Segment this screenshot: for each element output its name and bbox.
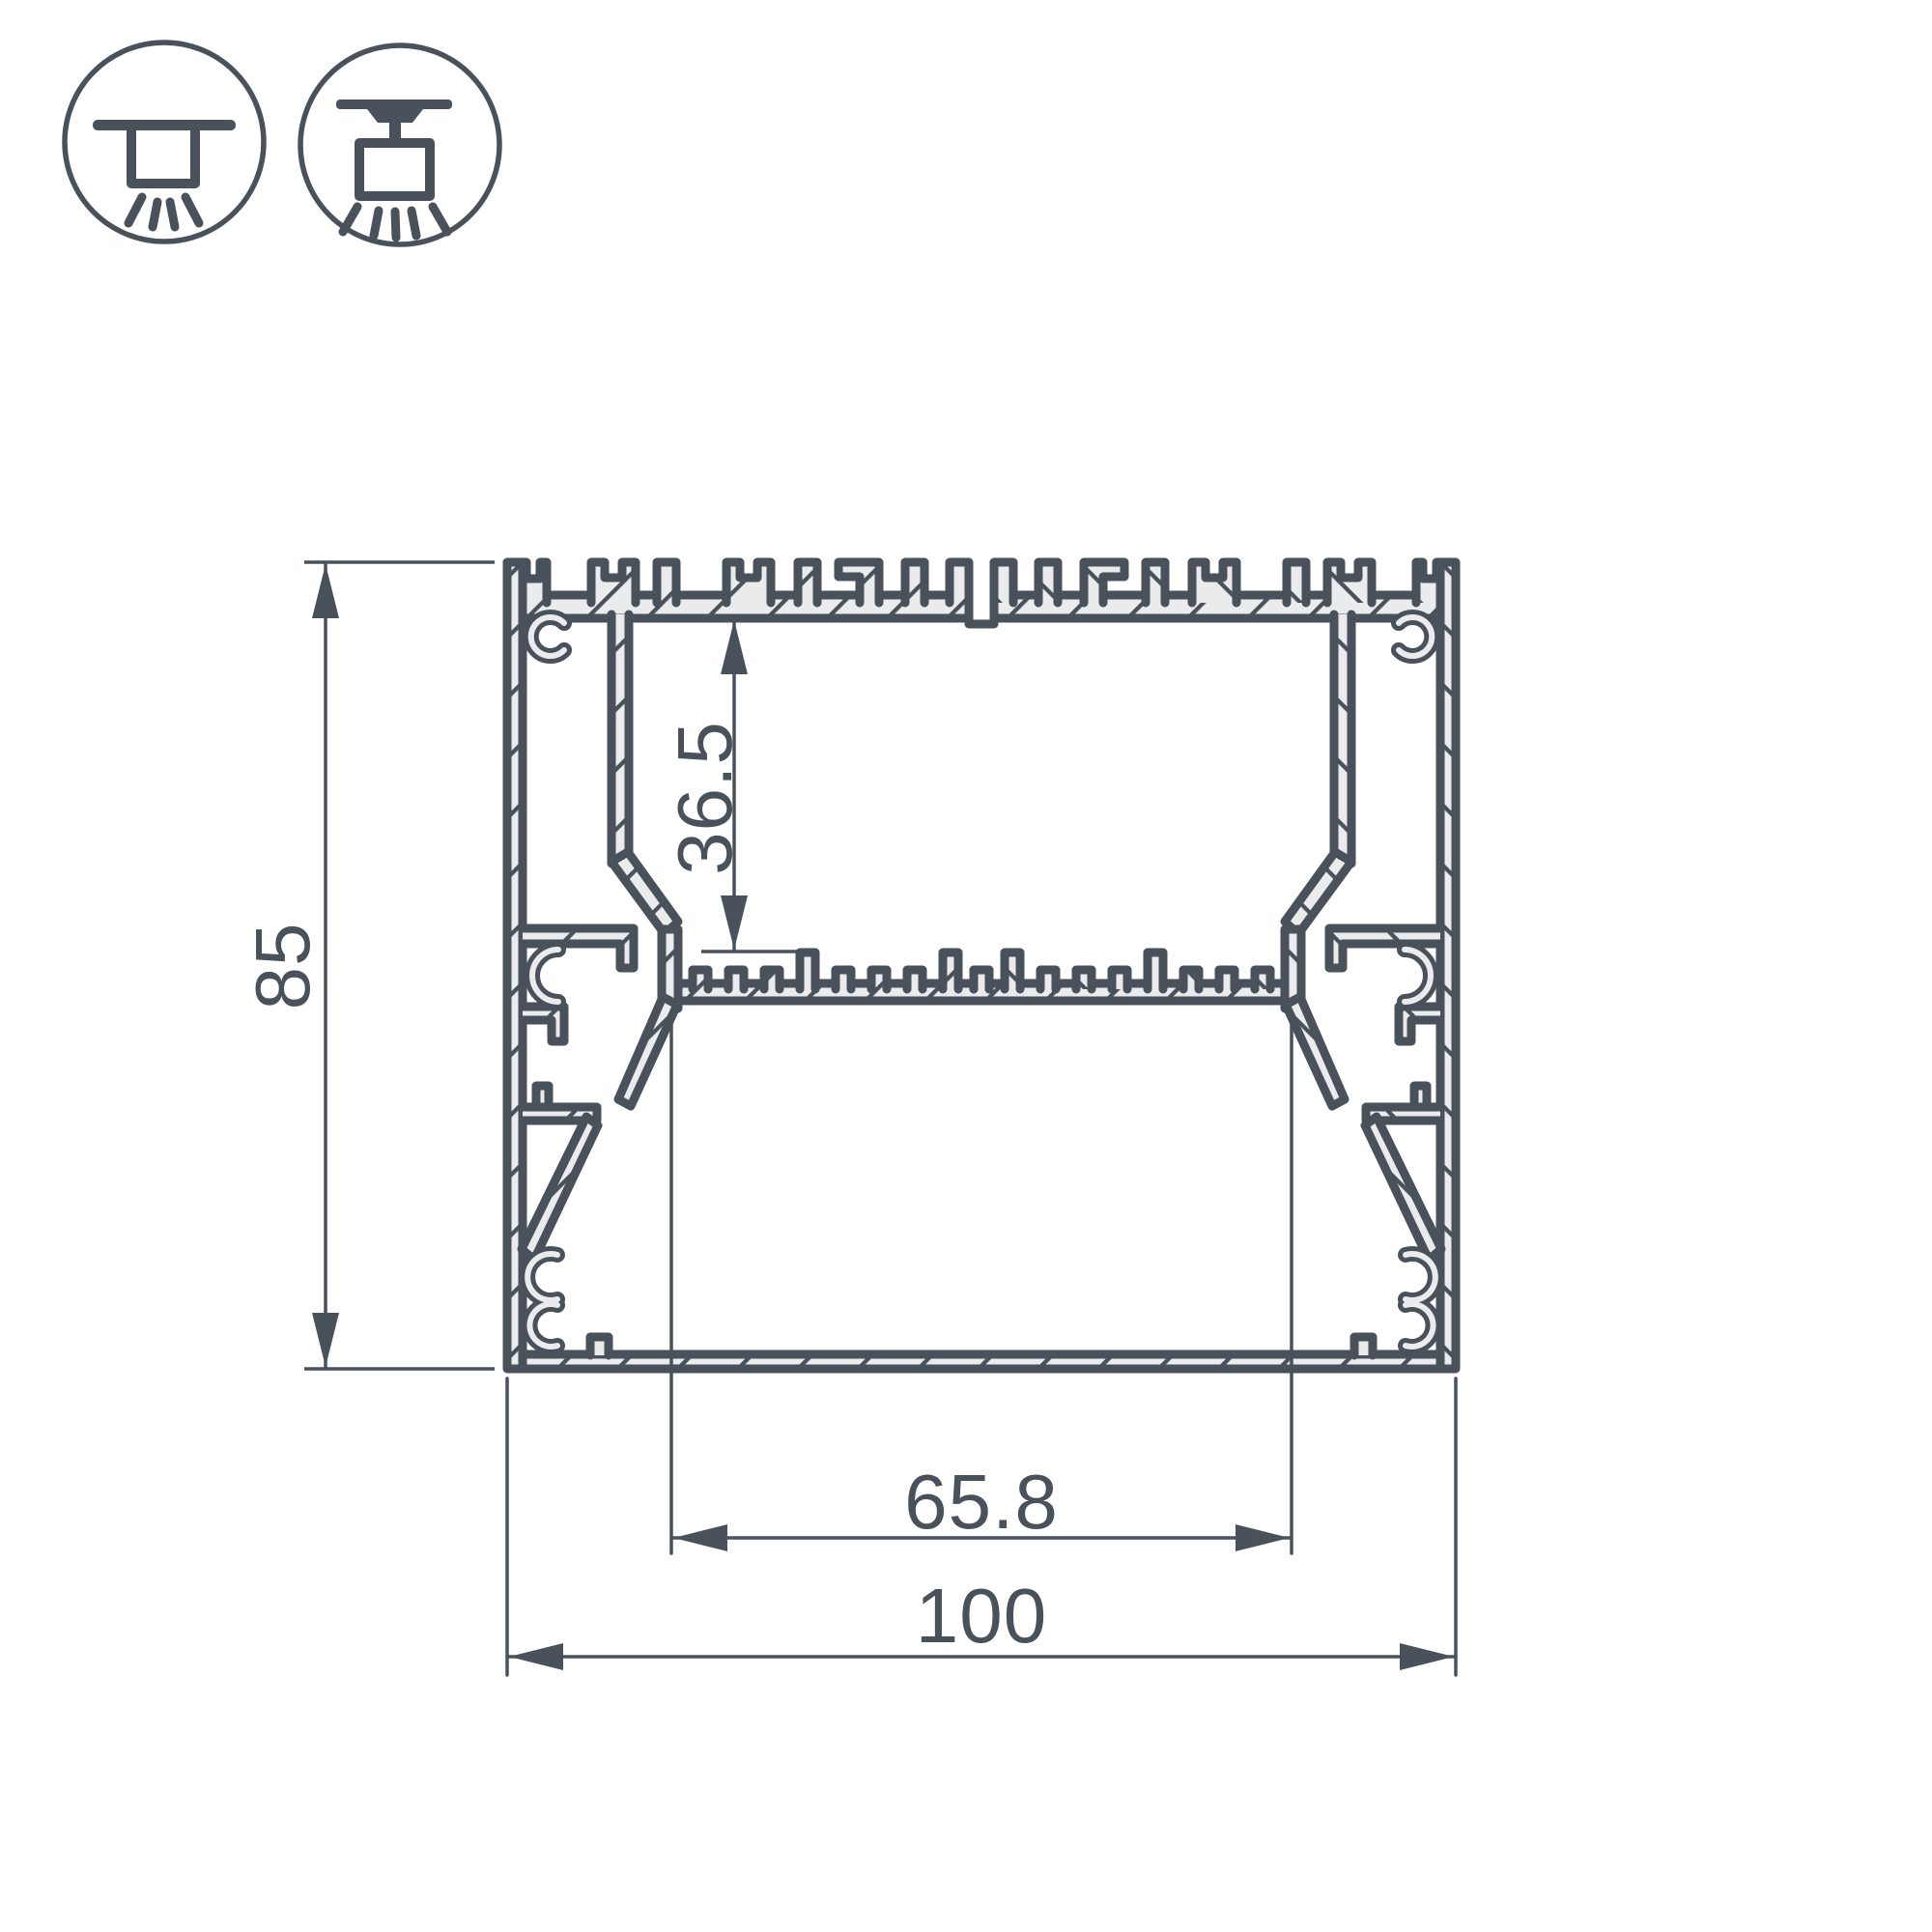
flange-tab <box>590 1337 609 1355</box>
shelf-fin-tall <box>943 952 958 989</box>
profile-cross-section-drawing: 85 36.5 65.8 100 <box>0 0 1932 1932</box>
shelf-fin <box>836 970 851 989</box>
dimension-label-cavity-depth: 36.5 <box>662 721 748 875</box>
heatsink-fin <box>798 562 817 603</box>
ceiling-line <box>336 99 452 109</box>
top-plate-center-slot <box>969 568 994 624</box>
heatsink-fin <box>905 562 924 603</box>
luminaire-box <box>131 126 195 184</box>
shelf-fin <box>764 970 780 989</box>
bottom-flange <box>523 1354 1440 1369</box>
dimension-label-overall-height: 85 <box>240 923 326 1010</box>
chamber-divider-wall <box>611 614 629 864</box>
shelf-fin-tall <box>800 952 815 989</box>
heatsink-fin <box>657 562 676 603</box>
shelf-fin <box>693 970 708 989</box>
drawing-canvas: 85 36.5 65.8 100 <box>0 0 1932 1932</box>
shelf-fin <box>728 970 744 989</box>
dimension-label-inner-width: 65.8 <box>904 1459 1059 1545</box>
luminaire-box <box>359 143 430 196</box>
shelf-fin <box>907 970 923 989</box>
shelf-fin <box>871 970 887 989</box>
dimension-label-overall-width: 100 <box>916 1573 1047 1659</box>
